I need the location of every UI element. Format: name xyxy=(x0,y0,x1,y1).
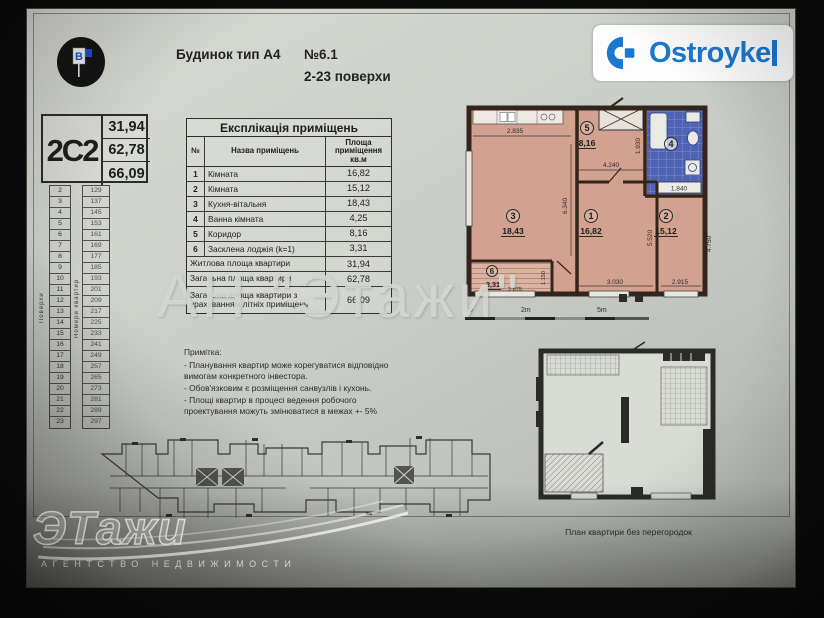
plan-sheet-page: B Будинок тип А4 №6.1 2-23 поверхи Ostro… xyxy=(26,8,796,588)
dim-room2-height: 4.750 xyxy=(706,235,713,252)
brand-logo: Ostroyke xyxy=(593,25,793,81)
explication-cell: Засклена лоджія (k=1) xyxy=(205,242,326,257)
apartment-number-cell: 169 xyxy=(83,241,109,252)
floor-cell: 5 xyxy=(50,219,70,230)
summary-value: 31,94 xyxy=(326,257,391,272)
explication-cell: Коридор xyxy=(205,227,326,242)
building-floor-plan xyxy=(96,426,496,532)
floor-cell: 12 xyxy=(50,296,70,307)
room-5-number: 5 xyxy=(580,121,594,135)
living-area-value: 31,94 xyxy=(103,116,150,139)
room-6-area: 3,31 xyxy=(471,280,515,289)
apartment-number-cell: 265 xyxy=(83,373,109,384)
dim-hall-width: 4.240 xyxy=(603,162,620,169)
apartment-number-cell: 225 xyxy=(83,318,109,329)
floor-cell: 3 xyxy=(50,197,70,208)
col-name-header: Назва приміщень xyxy=(205,137,326,166)
room-1-area: 16,82 xyxy=(569,226,613,236)
note-item: - Планування квартир може корегуватися в… xyxy=(184,360,406,382)
floor-cell: 14 xyxy=(50,318,70,329)
apartment-number-cell: 249 xyxy=(83,351,109,362)
room-2-area: 15,12 xyxy=(644,226,688,236)
apartment-type-card: 2С2 31,94 62,78 66,09 xyxy=(41,114,148,183)
explication-cell: 18,43 xyxy=(326,197,391,212)
developer-logo: B xyxy=(57,37,105,87)
floor-cell: 6 xyxy=(50,230,70,241)
summary-value: 66,09 xyxy=(326,287,391,313)
dim-bath-length: 1.840 xyxy=(671,186,688,193)
explication-cell: 1 xyxy=(187,167,205,182)
explication-table: Експлікація приміщень № Назва приміщень … xyxy=(186,118,392,314)
explication-cell: Кімната xyxy=(205,182,326,197)
apartment-number-cell: 129 xyxy=(83,186,109,197)
svg-text:B: B xyxy=(75,51,83,63)
explication-cell: Ванна кімната xyxy=(205,212,326,227)
floor-cell: 15 xyxy=(50,329,70,340)
note-item: - Обов'язковим є розміщення санвузлів і … xyxy=(184,383,406,394)
scale-bar: 0 2m 5m xyxy=(465,307,649,320)
dim-room1-width: 3.030 xyxy=(607,279,624,286)
dim-room2-width: 2.915 xyxy=(672,279,689,286)
floor-cell: 19 xyxy=(50,373,70,384)
note-item: - Площі квартир в процесі ведення робочо… xyxy=(184,395,406,417)
dim-room3-height: 6.340 xyxy=(562,197,569,214)
explication-cell: Кухня-вітальня xyxy=(205,197,326,212)
apartment-floor-plan: 1.840 xyxy=(459,96,715,331)
explication-cell: 8,16 xyxy=(326,227,391,242)
washer-icon xyxy=(685,160,700,175)
apartment-number-cell: 193 xyxy=(83,274,109,285)
dim-bath-width: 1.930 xyxy=(635,137,642,154)
floor-cell: 2 xyxy=(50,186,70,197)
photo-of-plan-sheet: B Будинок тип А4 №6.1 2-23 поверхи Ostro… xyxy=(0,0,824,618)
explication-cell: 5 xyxy=(187,227,205,242)
open-plan xyxy=(531,339,726,524)
notes-title: Примітка: xyxy=(184,347,406,358)
floor-cell: 13 xyxy=(50,307,70,318)
explication-cell: 16,82 xyxy=(326,167,391,182)
apartment-number-cell: 201 xyxy=(83,285,109,296)
explication-cell: 15,12 xyxy=(326,182,391,197)
apts-column-label: Номери квартир xyxy=(74,185,80,431)
explication-body: 1Кімната16,822Кімната15,123Кухня-вітальн… xyxy=(187,167,391,257)
brand-clipped-letter xyxy=(772,40,777,66)
explication-cell: 3,31 xyxy=(326,242,391,257)
brand-name: Ostroyke xyxy=(649,37,771,70)
apartment-number-cell: 209 xyxy=(83,296,109,307)
explication-header: № Назва приміщень Площа приміщення кв.м xyxy=(187,137,391,167)
apartment-type-code: 2С2 xyxy=(43,116,103,185)
floor-cell: 23 xyxy=(50,417,70,428)
col-area-header: Площа приміщення кв.м xyxy=(326,137,391,166)
col-no-header: № xyxy=(187,137,205,166)
room-6-number: 6 xyxy=(486,265,498,277)
scale-2m-label: 2m xyxy=(521,307,531,314)
apartment-number-cell: 161 xyxy=(83,230,109,241)
agency-logo-subtitle: АГЕНТСТВО НЕДВИЖИМОСТИ xyxy=(41,559,296,569)
building-type-label: Будинок тип А4 xyxy=(176,47,281,62)
notes-block: Примітка: - Планування квартир може коре… xyxy=(184,347,406,418)
floors-column: 234567891011121314151617181920212223 xyxy=(49,185,71,429)
notes-list: - Планування квартир може корегуватися в… xyxy=(184,360,406,417)
explication-cell: 4,25 xyxy=(326,212,391,227)
wardrobe-icon xyxy=(599,108,643,130)
apts-column: 1291371451531611691771851932012092172252… xyxy=(82,185,110,429)
summary-label: Загальна площа квартири xyxy=(187,272,326,287)
scale-5m-label: 5m xyxy=(597,307,607,314)
dim-loggia-depth: 1.150 xyxy=(541,271,547,285)
apartment-number-cell: 281 xyxy=(83,395,109,406)
apartment-number-cell: 289 xyxy=(83,406,109,417)
floor-cell: 16 xyxy=(50,340,70,351)
floors-column-label: Поверхи xyxy=(39,185,45,431)
floor-cell: 9 xyxy=(50,263,70,274)
open-plan-caption: План квартири без перегородок xyxy=(531,527,726,537)
scale-zero-label: 0 xyxy=(469,307,473,314)
open-plan-drawing xyxy=(531,339,726,524)
kitchen-counter-icon xyxy=(473,110,563,124)
floor-cell: 7 xyxy=(50,241,70,252)
floor-cell: 21 xyxy=(50,395,70,406)
toilet-icon xyxy=(688,131,699,145)
apartment-number-cell: 137 xyxy=(83,197,109,208)
apartment-number-cell: 257 xyxy=(83,362,109,373)
floor-cell: 10 xyxy=(50,274,70,285)
apartment-number-label: №6.1 xyxy=(304,47,338,62)
brand-icon xyxy=(603,34,641,72)
apartment-number-cell: 217 xyxy=(83,307,109,318)
floor-cell: 17 xyxy=(50,351,70,362)
summary-label: Житлова площа квартири xyxy=(187,257,326,272)
floor-cell: 22 xyxy=(50,406,70,417)
floor-cell: 11 xyxy=(50,285,70,296)
explication-cell: 4 xyxy=(187,212,205,227)
total-area-value: 62,78 xyxy=(103,139,150,162)
explication-cell: 2 xyxy=(187,182,205,197)
building-floor-plan-schematic xyxy=(96,426,496,532)
apartment-number-cell: 145 xyxy=(83,208,109,219)
floors-range-label: 2-23 поверхи xyxy=(304,69,391,84)
room-2-number: 2 xyxy=(659,209,673,223)
floors-apartments-table: Поверхи 23456789101112131415161718192021… xyxy=(39,185,129,431)
floor-cell: 8 xyxy=(50,252,70,263)
dim-room3-width: 2.835 xyxy=(507,128,524,135)
apartment-number-cell: 233 xyxy=(83,329,109,340)
floor-cell: 20 xyxy=(50,384,70,395)
sink-icon xyxy=(686,112,700,122)
explication-title: Експлікація приміщень xyxy=(187,119,391,137)
apartment-number-cell: 241 xyxy=(83,340,109,351)
explication-cell: Кімната xyxy=(205,167,326,182)
room-3-area: 18,43 xyxy=(491,226,535,236)
explication-summary: Житлова площа квартири31,94Загальна площ… xyxy=(187,257,391,313)
explication-cell: 3 xyxy=(187,197,205,212)
room-1-number: 1 xyxy=(584,209,598,223)
total-summer-area-value: 66,09 xyxy=(103,162,150,185)
apartment-number-cell: 273 xyxy=(83,384,109,395)
apartment-number-cell: 177 xyxy=(83,252,109,263)
room-5-area: 8,16 xyxy=(565,138,609,148)
explication-cell: 6 xyxy=(187,242,205,257)
room-3-number: 3 xyxy=(506,209,520,223)
apartment-number-cell: 185 xyxy=(83,263,109,274)
room-4-number: 4 xyxy=(664,137,678,151)
summary-label: Загальна площа квартири з урахуванням лі… xyxy=(187,287,326,313)
floor-cell: 4 xyxy=(50,208,70,219)
apartment-number-cell: 153 xyxy=(83,219,109,230)
summary-value: 62,78 xyxy=(326,272,391,287)
flag-icon: B xyxy=(66,45,96,79)
floor-cell: 18 xyxy=(50,362,70,373)
